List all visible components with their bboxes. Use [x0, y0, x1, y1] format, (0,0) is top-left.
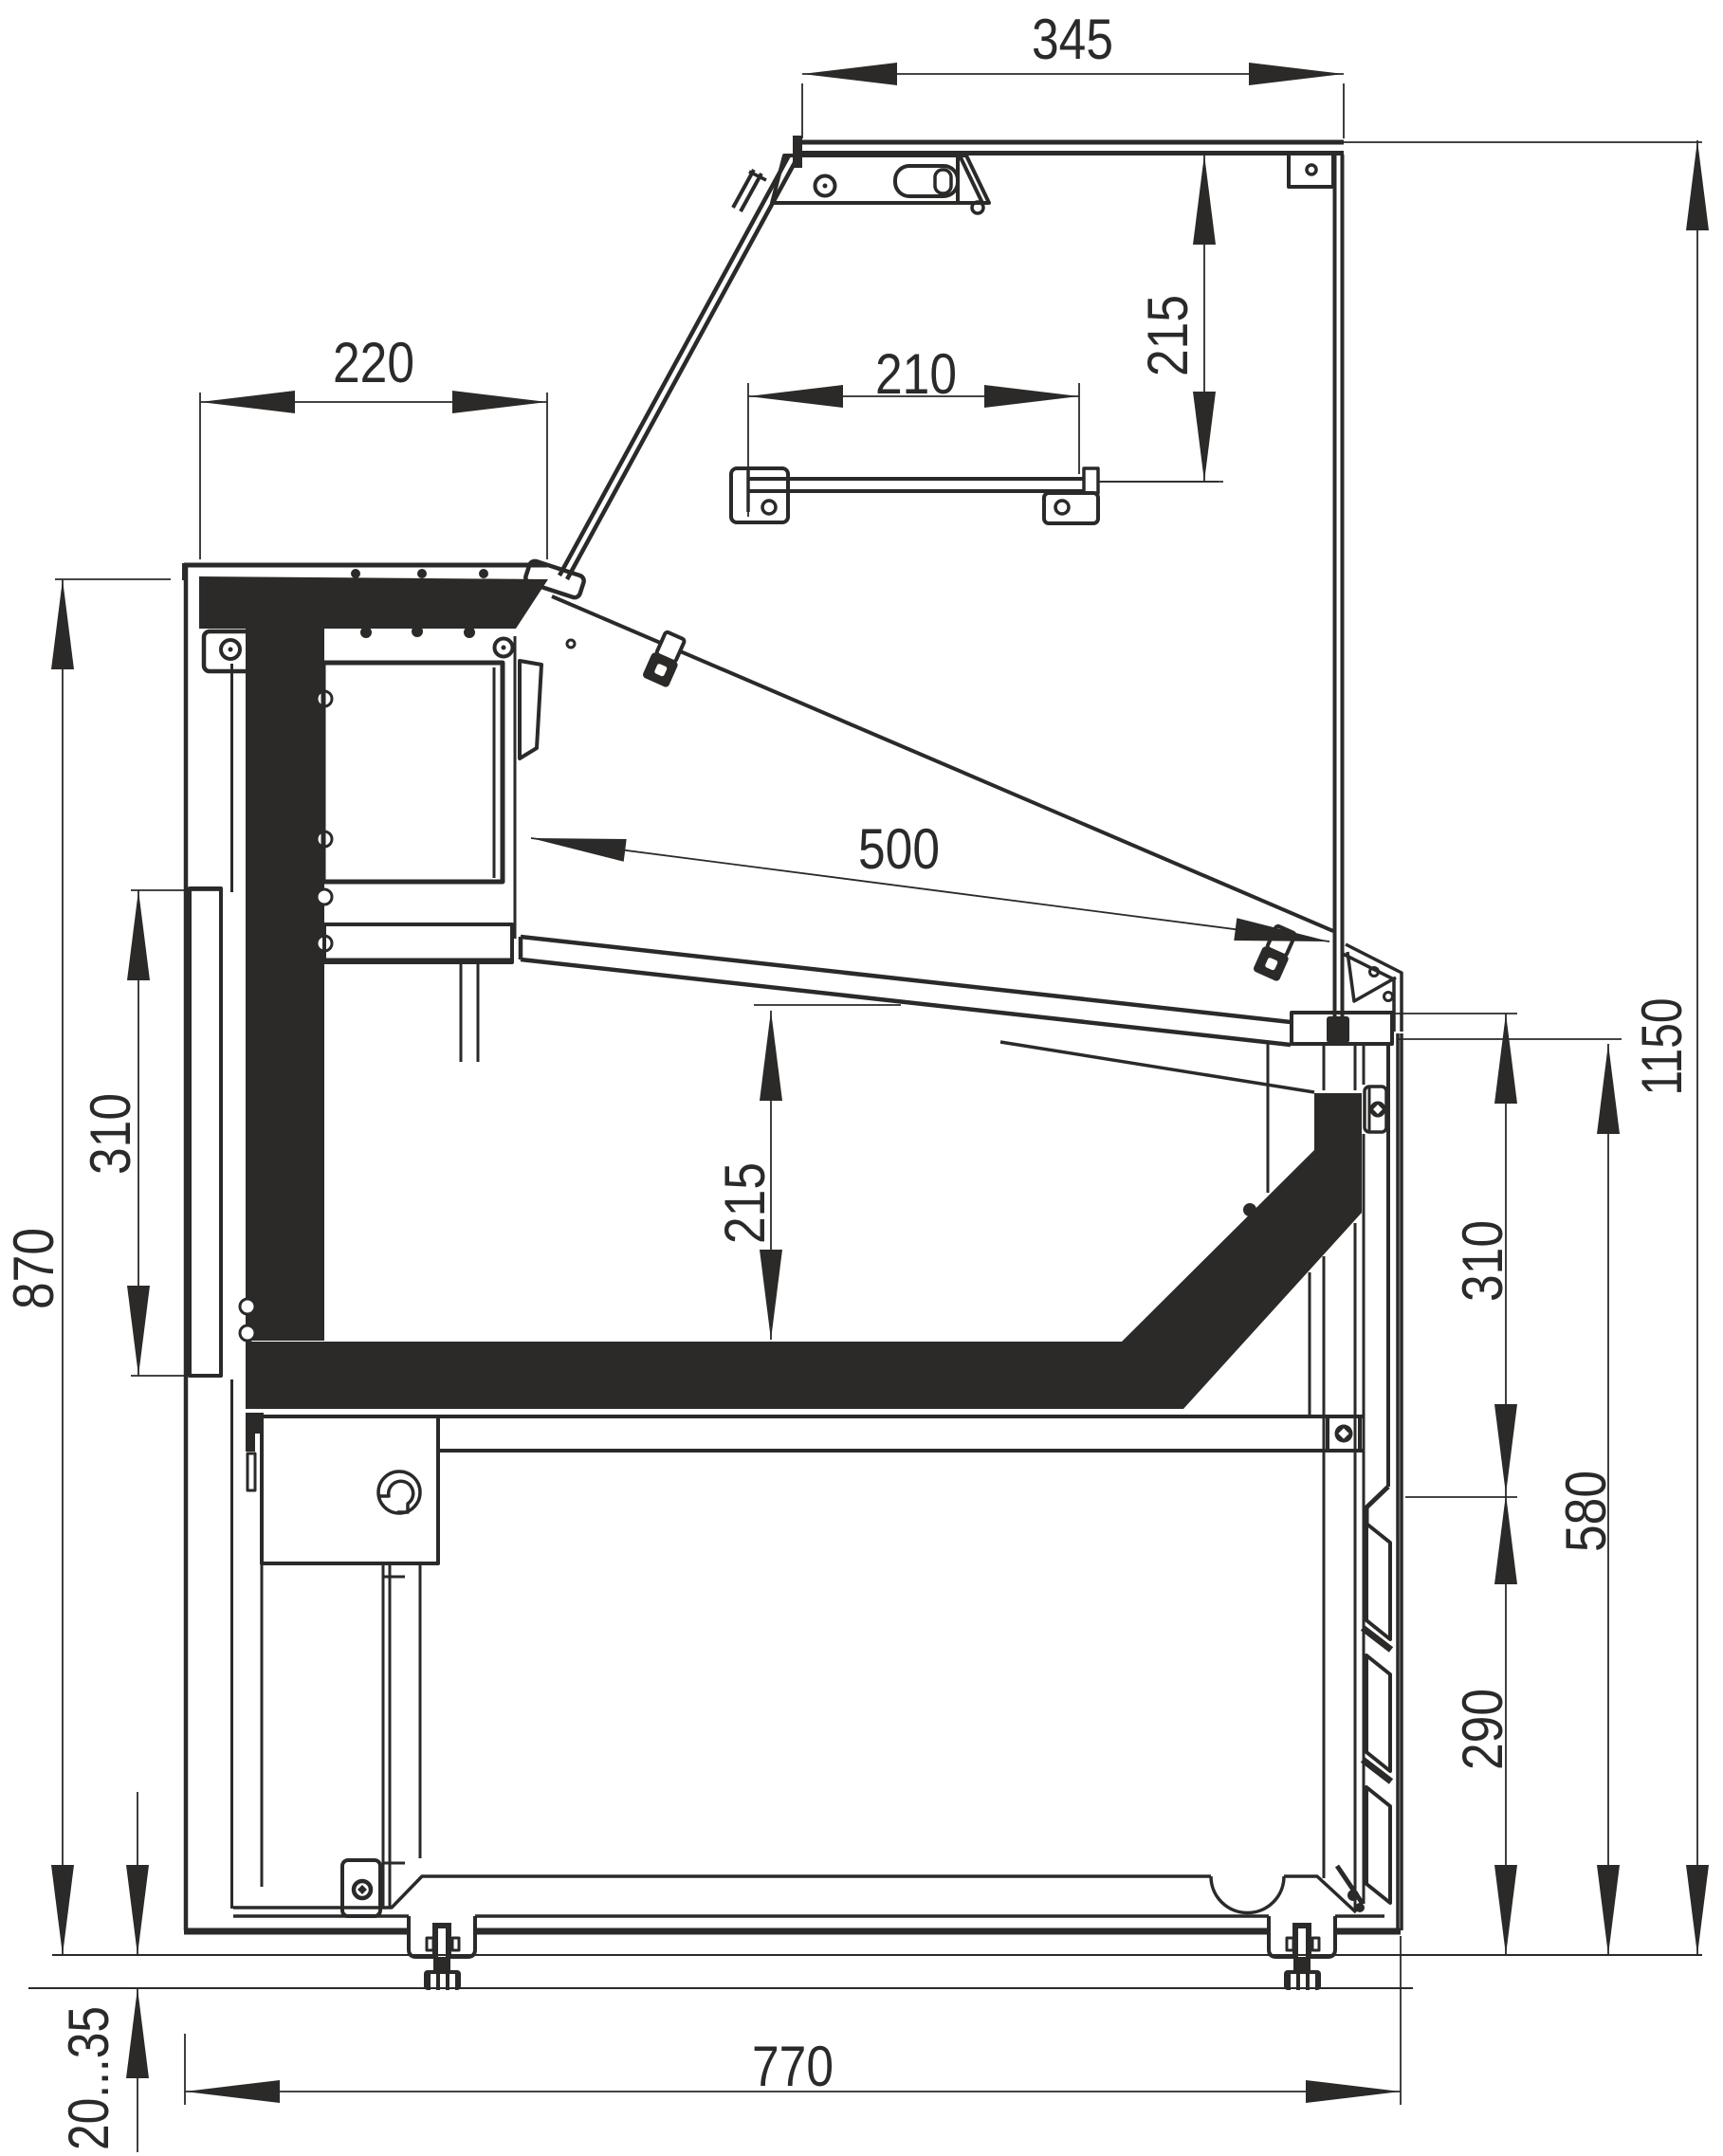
svg-text:310: 310	[79, 1093, 142, 1175]
svg-text:870: 870	[2, 1228, 65, 1309]
svg-text:215: 215	[713, 1162, 777, 1244]
svg-text:310: 310	[1451, 1220, 1514, 1302]
svg-text:1150: 1150	[1630, 998, 1694, 1096]
svg-text:500: 500	[858, 817, 940, 881]
svg-text:210: 210	[875, 342, 957, 406]
svg-text:215: 215	[1136, 295, 1200, 376]
svg-text:770: 770	[752, 2035, 834, 2098]
svg-text:20...35: 20...35	[57, 2006, 120, 2150]
svg-text:290: 290	[1451, 1689, 1514, 1770]
svg-text:220: 220	[333, 331, 414, 394]
svg-text:345: 345	[1032, 8, 1113, 71]
svg-text:580: 580	[1554, 1471, 1618, 1552]
